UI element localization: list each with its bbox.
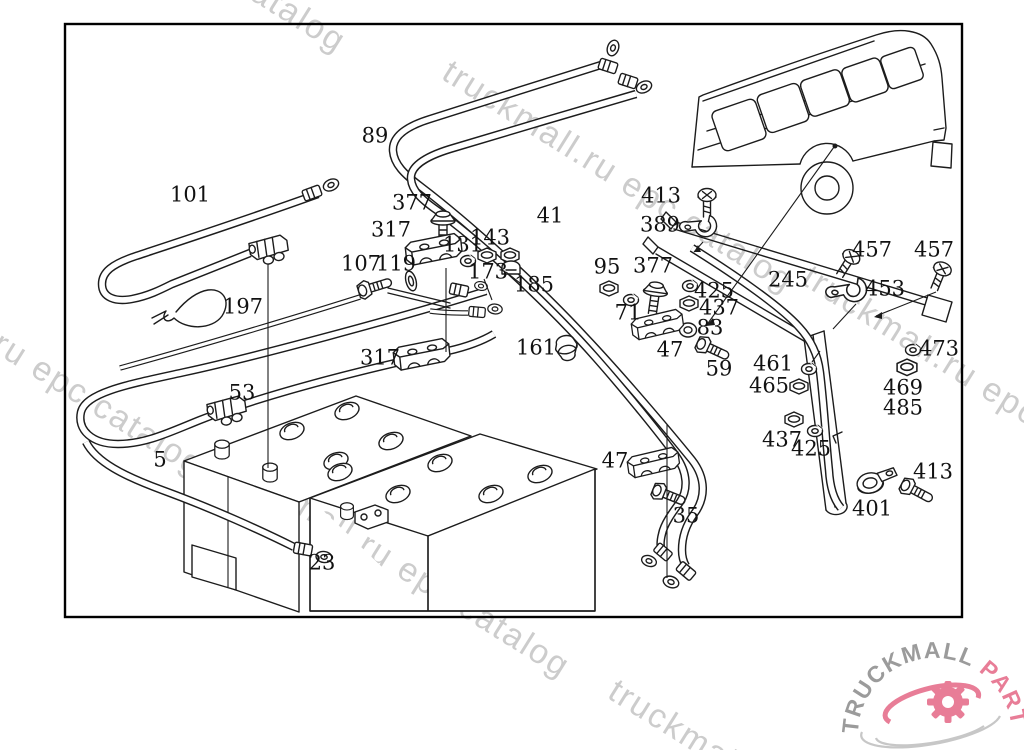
part-callout-453: 453 [865, 277, 905, 301]
terminal-clamp-401-icon [855, 467, 899, 495]
part-callout-457: 457 [914, 238, 954, 262]
watermark-text: truckmall.ru epc catalog [0, 0, 353, 60]
part-callout-465: 465 [749, 374, 789, 398]
part-callout-473: 473 [919, 337, 959, 361]
part-callout-71: 71 [615, 301, 642, 325]
battery-post [263, 463, 277, 482]
logo-gear-icon [927, 681, 969, 723]
bus-outline [692, 31, 952, 214]
part-callout-41: 41 [537, 204, 564, 228]
part-callout-59: 59 [706, 357, 733, 381]
part-callout-47: 47 [602, 449, 629, 473]
nut-95-icon [600, 281, 618, 296]
part-callout-5: 5 [153, 448, 166, 472]
part-callout-47: 47 [657, 338, 684, 362]
bolt-377-icon [640, 281, 668, 316]
battery-post [215, 440, 229, 459]
part-callout-457: 457 [852, 238, 892, 262]
part-callout-35: 35 [673, 504, 700, 528]
terminal-clamp [248, 234, 290, 266]
nut-465-icon [790, 379, 808, 394]
part-callout-101: 101 [170, 183, 210, 207]
parts-diagram-canvas: truckmall.ru epc catalog truckmall.ru ep… [0, 0, 1024, 750]
nut-469-icon [897, 359, 917, 376]
part-callout-119: 119 [376, 252, 416, 276]
part-callout-413: 413 [913, 460, 953, 484]
part-callout-53: 53 [229, 381, 256, 405]
ring-terminal [640, 553, 658, 568]
clamp-317-icon [392, 338, 451, 371]
watermark-text: truckmall.ru epc catalog [602, 672, 967, 750]
clamp-47-icon [626, 447, 680, 479]
part-callout-83: 83 [697, 316, 724, 340]
part-callout-401: 401 [852, 497, 892, 521]
part-callout-317: 317 [360, 346, 400, 370]
washer-461-icon [802, 363, 817, 375]
bus-bumper [931, 142, 952, 168]
battery-post [341, 503, 354, 520]
ring-terminal [321, 177, 340, 194]
bolt-107-icon [356, 273, 394, 300]
nut-437-icon [785, 412, 803, 427]
part-callout-143: 143 [470, 226, 510, 250]
part-callout-173: 173 [468, 260, 508, 284]
part-callout-197: 197 [223, 295, 263, 319]
battery-cable-101 [102, 177, 341, 300]
part-callout-185: 185 [514, 273, 554, 297]
screw-457-icon [926, 259, 953, 292]
parts-catalog-page: truckmall.ru epc catalog truckmall.ru ep… [0, 0, 1024, 750]
washer-425-icon [808, 425, 823, 437]
ring-terminal [605, 39, 621, 58]
part-callout-89: 89 [362, 124, 389, 148]
part-callout-245: 245 [768, 268, 808, 292]
part-callout-389: 389 [640, 213, 680, 237]
part-callout-377: 377 [633, 254, 673, 278]
part-callout-95: 95 [594, 255, 621, 279]
part-callout-161: 161 [516, 336, 556, 360]
part-callout-23: 23 [309, 551, 336, 575]
part-callout-317: 317 [371, 218, 411, 242]
part-callout-377: 377 [392, 191, 432, 215]
ring-terminal [662, 574, 681, 590]
part-callout-461: 461 [753, 352, 793, 376]
bus-wheel [801, 162, 853, 214]
part-callout-425: 425 [791, 437, 831, 461]
cable-tie-197 [152, 290, 226, 327]
part-callout-485: 485 [883, 396, 923, 420]
ring-terminal [487, 303, 502, 314]
part-callout-413: 413 [641, 184, 681, 208]
battery-bank [184, 396, 597, 612]
